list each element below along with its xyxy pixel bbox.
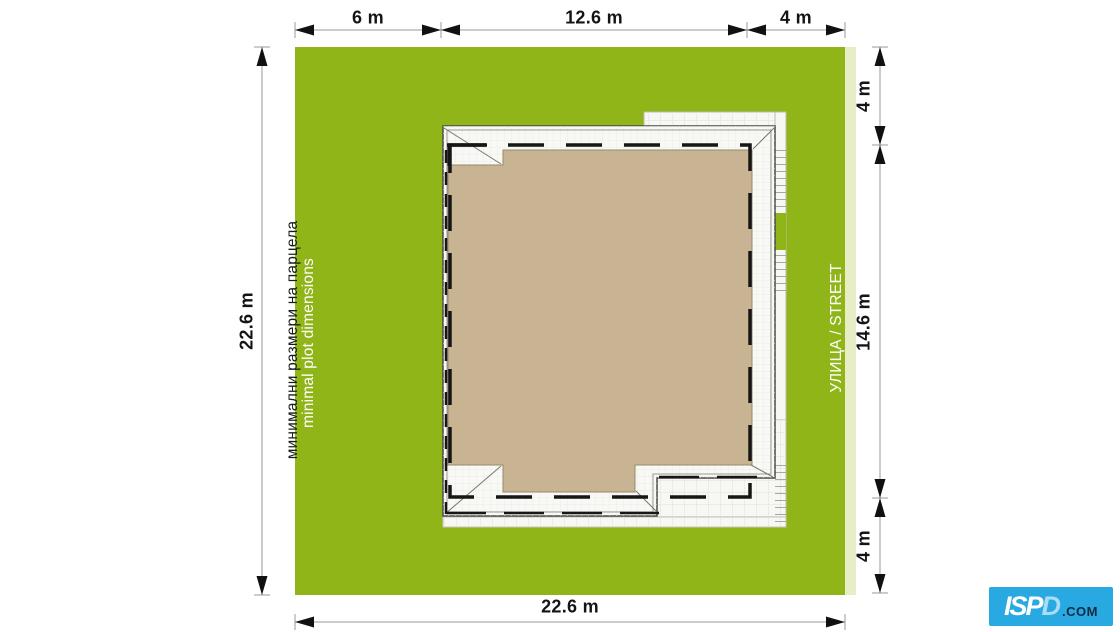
dim-top-4m: 4 m [780, 8, 812, 29]
roof-surface [448, 150, 752, 492]
logo-text-suffix: .COM [1062, 604, 1098, 619]
dim-right-4m-bottom: 4 m [854, 530, 875, 562]
dim-bottom-22-6m: 22.6 m [541, 597, 599, 618]
ispd-logo: ISP D .COM [989, 587, 1113, 626]
dim-top-12-6m: 12.6 m [565, 8, 623, 29]
logo-text-main: ISP [1004, 593, 1042, 620]
dim-top-6m: 6 m [352, 8, 384, 29]
dim-left-22-6m: 22.6 m [237, 292, 258, 350]
site-plan-drawing [0, 0, 1120, 632]
pergola-steps [775, 150, 786, 213]
plot-label-english: minimal plot dimensions [300, 258, 318, 428]
logo-text-d: D [1042, 593, 1061, 620]
planter-inset [775, 213, 786, 250]
dim-right-14-6m: 14.6 m [854, 293, 875, 351]
dim-right-4m-top: 4 m [854, 80, 875, 112]
site-plan-page: 6 m 12.6 m 4 m 22.6 m 4 m 14.6 m 4 m 22.… [0, 0, 1120, 632]
building-roof [443, 126, 775, 516]
street-label: УЛИЦА / STREET [828, 263, 846, 392]
